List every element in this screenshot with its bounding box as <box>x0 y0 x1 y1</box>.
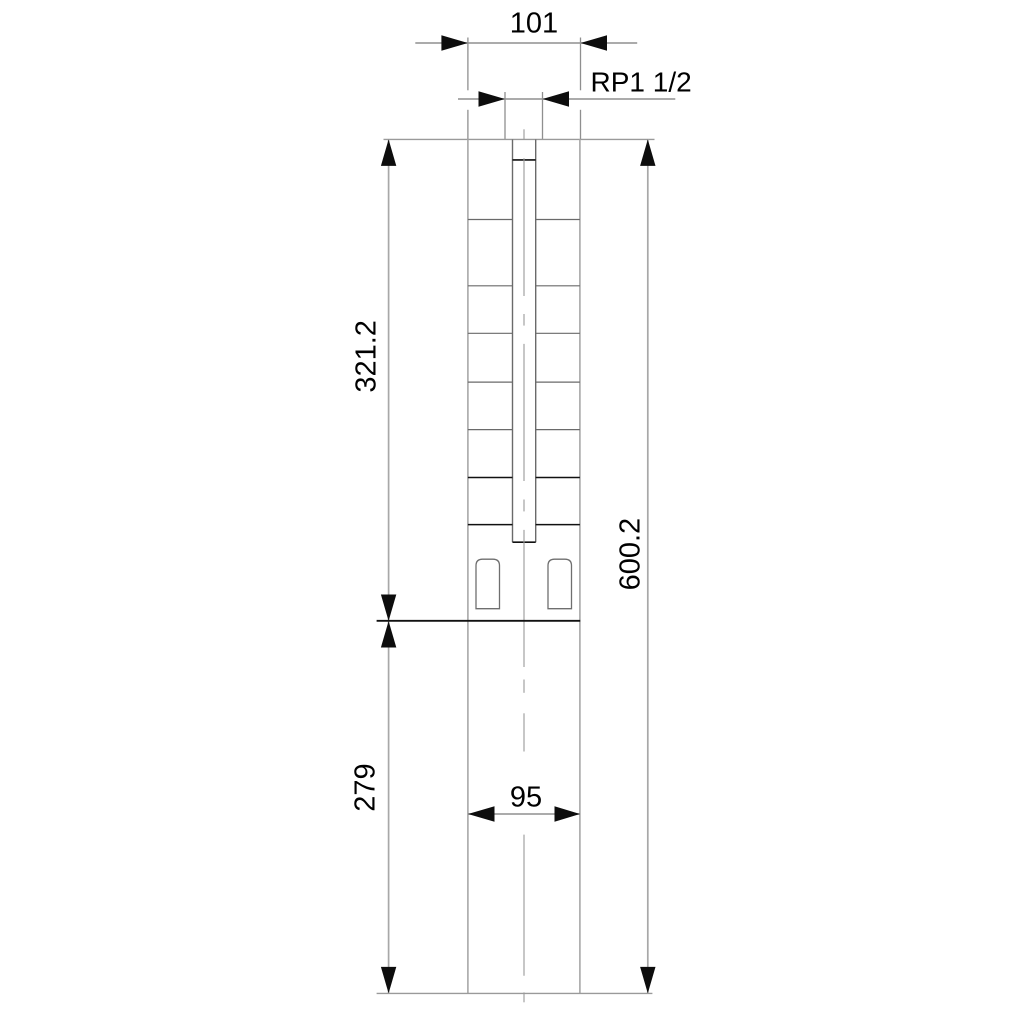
svg-text:95: 95 <box>510 781 542 813</box>
svg-text:RP1 1/2: RP1 1/2 <box>591 66 692 97</box>
svg-text:101: 101 <box>510 8 558 40</box>
svg-text:600.2: 600.2 <box>615 518 647 591</box>
svg-text:279: 279 <box>350 763 382 811</box>
svg-text:321.2: 321.2 <box>351 320 383 393</box>
